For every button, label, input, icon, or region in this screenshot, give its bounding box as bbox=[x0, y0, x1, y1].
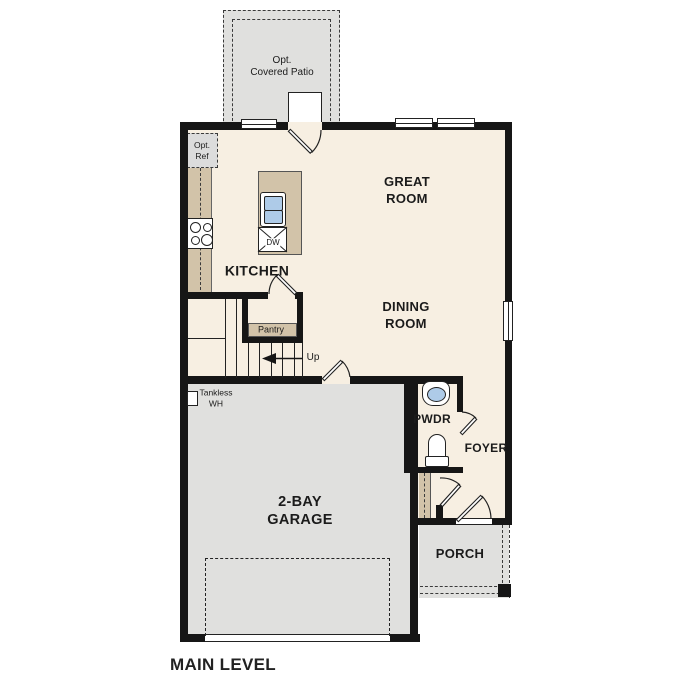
sink-basin bbox=[264, 210, 283, 224]
window-mullion bbox=[242, 124, 276, 125]
closet-shelf-dashed-line bbox=[424, 473, 425, 518]
stair-tread bbox=[259, 343, 260, 378]
sink-basin bbox=[264, 196, 283, 211]
stove bbox=[186, 218, 213, 249]
floor-plan: Opt. Covered Patio Opt. Ref GREAT ROOM K… bbox=[0, 0, 687, 687]
burner-icon bbox=[190, 222, 201, 233]
porch-column bbox=[498, 584, 511, 597]
stair-tread bbox=[236, 299, 237, 378]
kitchen-window bbox=[241, 119, 277, 129]
garage-label: 2-BAY GARAGE bbox=[267, 493, 332, 529]
pantry-left-wall bbox=[242, 292, 248, 343]
burner-icon bbox=[191, 236, 200, 245]
pwdr-right-wall bbox=[457, 376, 463, 412]
stair-tread bbox=[282, 343, 283, 378]
patio-door-step bbox=[288, 92, 322, 124]
dishwasher-label: DW bbox=[265, 238, 280, 248]
stair-tread bbox=[248, 343, 249, 378]
porch-dashed-inner-v bbox=[502, 525, 503, 593]
garage-porch-divider-wall bbox=[410, 473, 418, 642]
front-door-opening bbox=[456, 518, 492, 525]
burner-icon bbox=[201, 234, 213, 246]
stair-nosing-line bbox=[188, 338, 225, 339]
foyer-label: FOYER bbox=[465, 441, 508, 455]
closet-stub-wall bbox=[436, 505, 443, 518]
kitchen-label: KITCHEN bbox=[225, 263, 289, 280]
stair-tread bbox=[271, 343, 272, 378]
garage-entry-opening bbox=[322, 376, 350, 384]
pwdr-label: PWDR bbox=[413, 412, 451, 426]
great-room-label: GREAT ROOM bbox=[384, 174, 430, 208]
closet-shelf bbox=[419, 473, 431, 518]
pwdr-sink-bowl bbox=[427, 387, 446, 402]
stair-tread bbox=[294, 343, 295, 378]
window-mullion bbox=[508, 302, 509, 340]
pantry-door-opening bbox=[268, 292, 295, 299]
window-mullion bbox=[438, 123, 474, 124]
pantry-right-wall bbox=[297, 292, 303, 343]
porch-dashed-inner-h bbox=[420, 586, 502, 587]
up-label: Up bbox=[307, 352, 320, 364]
garage-door-dashed bbox=[205, 558, 390, 636]
pwdr-sink bbox=[422, 381, 450, 406]
patio-door-opening bbox=[288, 122, 322, 130]
pantry-label: Pantry bbox=[258, 325, 284, 336]
burner-icon bbox=[203, 223, 212, 232]
stair-tread bbox=[225, 299, 226, 378]
porch-label: PORCH bbox=[436, 546, 484, 562]
pwdr-bottom-wall bbox=[404, 467, 463, 473]
plan-title: MAIN LEVEL bbox=[170, 655, 276, 675]
dining-side-window bbox=[503, 301, 513, 341]
porch-dashed-outer-h bbox=[420, 593, 510, 594]
island-sink bbox=[260, 192, 286, 227]
tankless-water-heater bbox=[187, 391, 198, 406]
tankless-wh-label: Tankless WH bbox=[199, 387, 232, 408]
patio-label: Opt. Covered Patio bbox=[250, 55, 313, 79]
window-mullion bbox=[396, 123, 432, 124]
great-room-window-right bbox=[437, 118, 475, 128]
opt-ref-label: Opt. Ref bbox=[194, 140, 210, 162]
dining-room-label: DINING ROOM bbox=[382, 299, 429, 333]
toilet-tank bbox=[425, 456, 449, 467]
great-room-window-left bbox=[395, 118, 433, 128]
stair-edge bbox=[302, 343, 303, 378]
